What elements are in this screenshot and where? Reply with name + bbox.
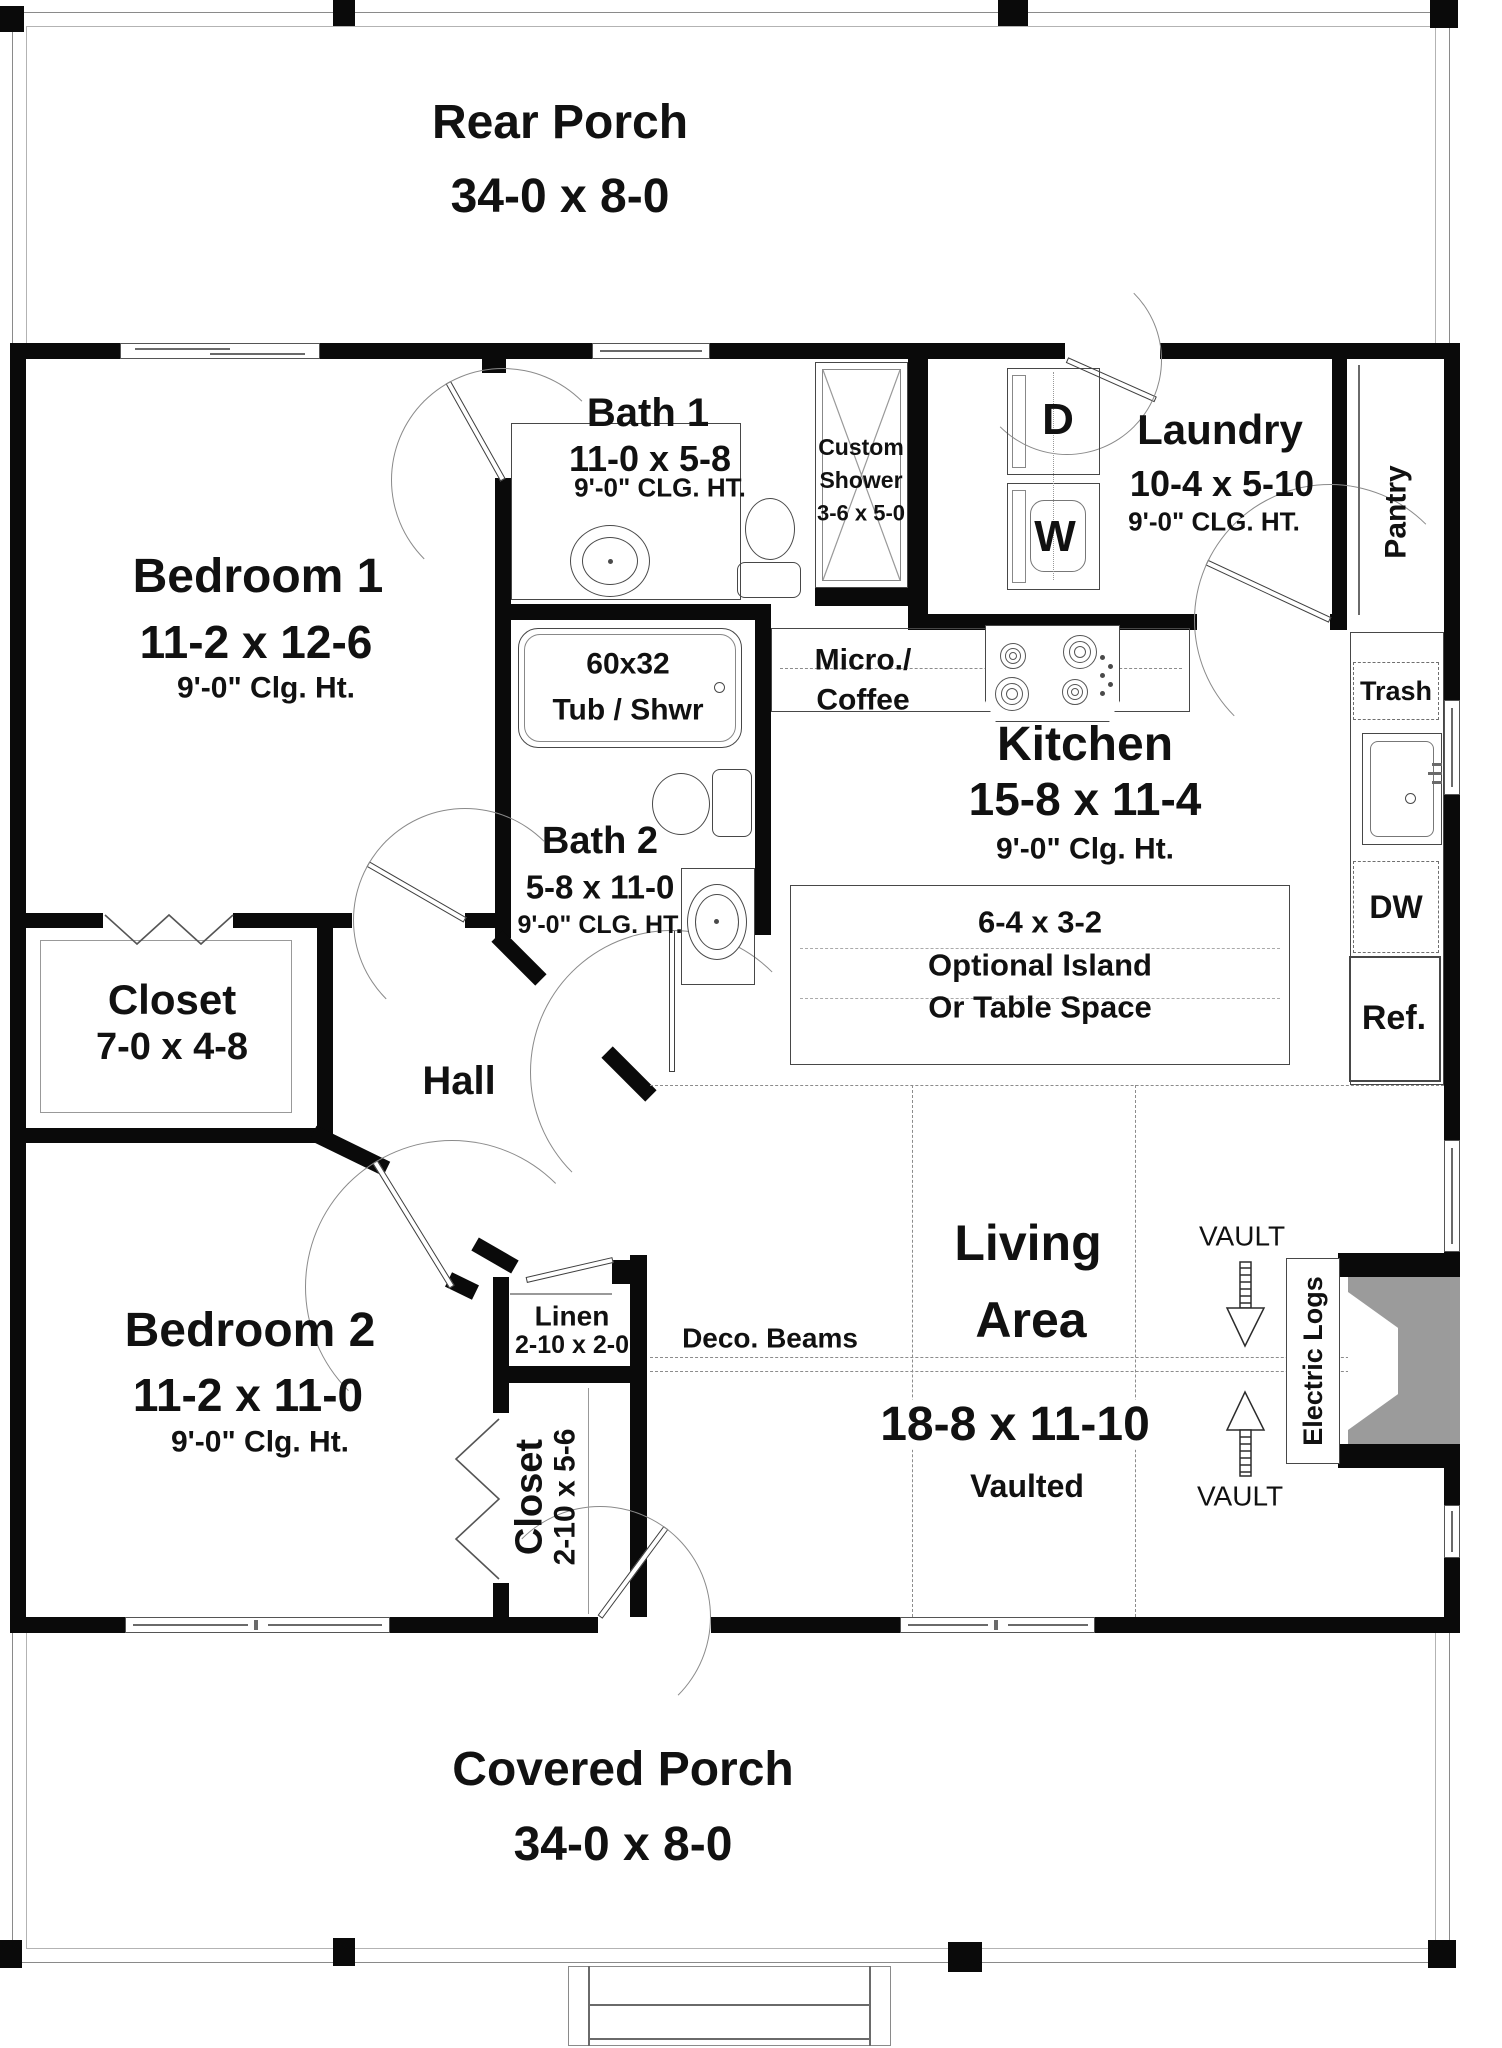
porch-post <box>998 0 1028 26</box>
window-line <box>135 348 230 350</box>
bath2-dims: 5-8 x 11-0 <box>526 871 675 906</box>
knob <box>1100 673 1105 678</box>
porch-post <box>333 1938 355 1966</box>
porch-post <box>0 6 24 32</box>
porch-post <box>1428 1940 1456 1968</box>
hall-label: Hall <box>422 1060 495 1102</box>
bath1-toilet-tank <box>737 562 801 598</box>
wall <box>755 604 771 935</box>
sink-drain <box>1405 793 1416 804</box>
knob <box>1108 664 1113 669</box>
window-line <box>1451 1511 1453 1552</box>
custom-shower-line1: Custom <box>818 435 904 459</box>
tub-label-line1: 60x32 <box>586 648 669 680</box>
wall <box>10 1128 333 1143</box>
wall <box>1444 1558 1460 1633</box>
bath2-ceiling: 9'-0" CLG. HT. <box>517 912 682 938</box>
wall <box>233 913 352 928</box>
closet1-dims: 7-0 x 4-8 <box>96 1028 248 1068</box>
pantry-label: Pantry <box>1380 465 1412 558</box>
porch-post <box>948 1942 982 1972</box>
step-line <box>588 2004 869 2006</box>
living-dims: 18-8 x 11-10 <box>875 1400 1155 1450</box>
step-line <box>588 1966 590 2046</box>
vault-label-top: VAULT <box>1199 1221 1285 1250</box>
knob <box>1100 655 1105 660</box>
closet2-rod-line <box>588 1388 589 1614</box>
bath1-sink-drain <box>608 559 613 564</box>
wall <box>320 343 592 359</box>
linen-shelf-line <box>510 1293 612 1295</box>
wall <box>10 1617 125 1633</box>
rear-porch-inner-line <box>26 26 1436 351</box>
step-line <box>869 1966 871 2046</box>
fireplace-top <box>1338 1253 1460 1277</box>
faucet <box>1432 781 1442 784</box>
window-line <box>268 1624 382 1626</box>
kitchen-dims: 15-8 x 11-4 <box>969 775 1202 823</box>
window-line <box>133 1624 248 1626</box>
kitchen-ceiling: 9'-0" Clg. Ht. <box>996 833 1174 865</box>
bedroom1-dims: 11-2 x 12-6 <box>140 618 373 666</box>
wall <box>495 604 771 620</box>
porch-post <box>333 0 355 26</box>
custom-shower-dims: 3-6 x 5-0 <box>817 501 905 524</box>
burner <box>995 677 1029 711</box>
ceiling-line <box>650 1085 1444 1086</box>
covered-porch-dims: 34-0 x 8-0 <box>514 1820 733 1870</box>
window-line <box>1451 1148 1453 1244</box>
bath2-sink-drain <box>714 919 719 924</box>
laundry-ceiling: 9'-0" CLG. HT. <box>1128 508 1300 535</box>
window-mullion <box>254 1620 258 1630</box>
dryer-detail <box>1012 375 1026 468</box>
porch-post <box>1430 0 1458 28</box>
wall <box>1095 1617 1460 1633</box>
island-dims: 6-4 x 3-2 <box>978 907 1102 940</box>
burner <box>1062 679 1088 705</box>
rear-porch-label: Rear Porch <box>432 98 688 148</box>
window-bedroom1 <box>120 343 320 359</box>
closet2-label: Closet <box>511 1429 549 1566</box>
wall <box>612 1260 632 1284</box>
bedroom2-ceiling: 9'-0" Clg. Ht. <box>171 1426 349 1458</box>
laundry-dims: 10-4 x 5-10 <box>1130 465 1314 503</box>
faucet <box>1428 772 1442 775</box>
bedroom1-label: Bedroom 1 <box>133 552 384 602</box>
washer-detail <box>1012 490 1026 583</box>
bath2-toilet-tank <box>712 769 752 837</box>
bath2-toilet-bowl <box>652 773 710 835</box>
island-line3: Or Table Space <box>928 992 1151 1025</box>
door-arc <box>530 930 814 1214</box>
vault-label-bottom: VAULT <box>1197 1481 1283 1510</box>
closet1-label: Closet <box>108 978 236 1022</box>
living-label-line2: Area <box>975 1294 1086 1347</box>
micro-coffee-line1: Micro./ <box>815 644 912 676</box>
window-mullion <box>994 1620 998 1630</box>
kitchen-sink-basin <box>1370 741 1434 837</box>
step-line <box>588 2038 869 2040</box>
bifold-closet2 <box>456 1419 499 1579</box>
closet2-dims: 2-10 x 5-6 <box>549 1429 582 1566</box>
refrigerator-label: Ref. <box>1362 1001 1426 1037</box>
bath1-toilet-bowl <box>745 498 795 560</box>
wall <box>1160 343 1460 359</box>
wall <box>317 928 333 1130</box>
window-line <box>210 353 305 355</box>
window-line <box>1008 1624 1088 1626</box>
bedroom2-dims: 11-2 x 11-0 <box>133 1371 363 1419</box>
window-line <box>1451 708 1453 787</box>
pantry-shelf-line <box>1358 365 1360 615</box>
wall <box>815 588 915 606</box>
wall <box>711 1617 900 1633</box>
deco-beams-label: Deco. Beams <box>682 1323 858 1352</box>
window-line <box>600 350 702 352</box>
fireplace-bottom <box>1338 1444 1460 1468</box>
vault-line <box>912 1085 913 1617</box>
wall <box>10 913 103 928</box>
island-line2: Optional Island <box>928 950 1152 983</box>
window-line <box>908 1624 988 1626</box>
living-label-line1: Living <box>954 1217 1101 1270</box>
vault-arrow-down <box>1227 1262 1264 1346</box>
washer-label: W <box>1034 514 1076 560</box>
knob <box>1108 682 1113 687</box>
bath2-label: Bath 2 <box>542 822 658 862</box>
covered-porch-label: Covered Porch <box>452 1745 793 1795</box>
bath1-label: Bath 1 <box>587 392 709 434</box>
tub-drain <box>714 682 725 693</box>
custom-shower-line2: Shower <box>819 468 902 492</box>
bedroom2-label: Bedroom 2 <box>125 1306 376 1356</box>
dryer-label: D <box>1042 397 1074 443</box>
electric-logs-label: Electric Logs <box>1299 1276 1327 1446</box>
kitchen-label: Kitchen <box>997 720 1173 770</box>
wall <box>1444 795 1460 1140</box>
bath1-ceiling: 9'-0" CLG. HT. <box>574 474 746 501</box>
tub-label-line2: Tub / Shwr <box>552 694 703 726</box>
wall <box>10 343 26 1633</box>
vault-line <box>1135 1085 1136 1617</box>
wall <box>10 343 120 359</box>
floor-plan: Rear Porch 34-0 x 8-0 Bedroom 1 11-2 x 1… <box>0 0 1502 2048</box>
closet2-label-group: Closet 2-10 x 5-6 <box>511 1429 582 1566</box>
knob <box>1100 691 1105 696</box>
linen-dims: 2-10 x 2-0 <box>515 1332 629 1358</box>
burner <box>1063 635 1097 669</box>
porch-steps <box>568 1966 891 2046</box>
porch-post <box>0 1940 22 1968</box>
living-note: Vaulted <box>970 1470 1084 1504</box>
dishwasher-label: DW <box>1369 891 1422 925</box>
vault-arrow-up <box>1227 1392 1264 1476</box>
trash-label: Trash <box>1360 677 1432 705</box>
micro-coffee-line2: Coffee <box>816 684 909 716</box>
bedroom1-ceiling: 9'-0" Clg. Ht. <box>177 672 355 704</box>
rear-porch-dims: 34-0 x 8-0 <box>451 172 670 222</box>
burner <box>1000 643 1026 669</box>
faucet <box>1432 763 1442 766</box>
linen-label: Linen <box>535 1301 610 1330</box>
laundry-label: Laundry <box>1137 408 1303 452</box>
